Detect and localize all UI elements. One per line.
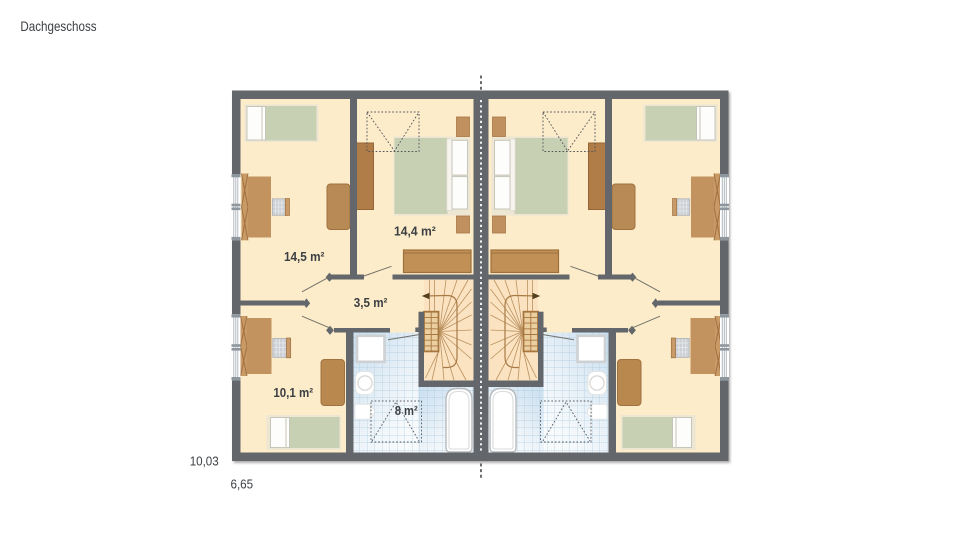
svg-text:3,5 m²: 3,5 m² bbox=[354, 295, 388, 310]
svg-text:6,65: 6,65 bbox=[231, 477, 254, 492]
svg-text:10,1 m²: 10,1 m² bbox=[273, 385, 313, 400]
svg-text:8 m²: 8 m² bbox=[395, 403, 418, 418]
svg-text:10,03: 10,03 bbox=[190, 454, 219, 469]
svg-text:14,5 m²: 14,5 m² bbox=[284, 249, 325, 264]
svg-text:14,4 m²: 14,4 m² bbox=[394, 224, 436, 239]
svg-text:Dachgeschoss: Dachgeschoss bbox=[20, 18, 96, 34]
